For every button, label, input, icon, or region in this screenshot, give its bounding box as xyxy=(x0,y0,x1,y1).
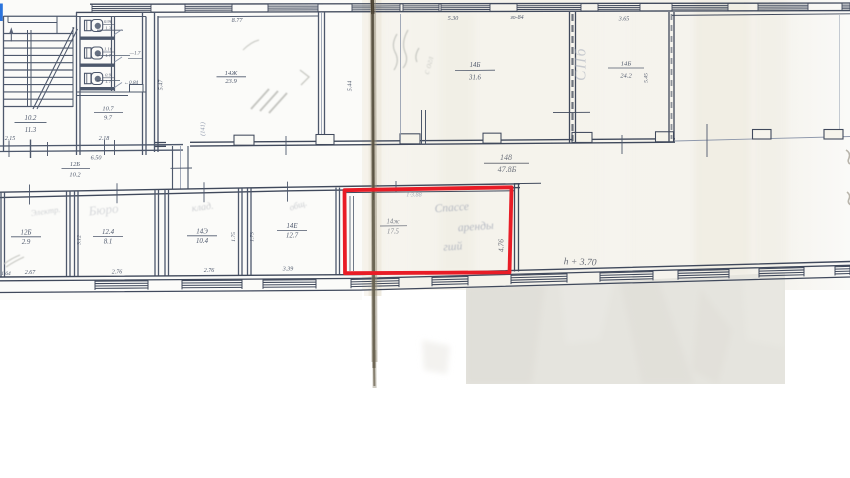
svg-text:1.75: 1.75 xyxy=(231,232,237,242)
svg-text:2.18: 2.18 xyxy=(99,136,110,142)
svg-text:1.3: 1.3 xyxy=(105,26,111,31)
svg-text:14Ж: 14Ж xyxy=(225,70,239,77)
svg-text:4.76: 4.76 xyxy=(497,239,506,252)
svg-text:6.50: 6.50 xyxy=(91,154,103,161)
svg-text:5.44: 5.44 xyxy=(347,81,354,92)
svg-text:14Е: 14Е xyxy=(286,223,298,230)
svg-text:47.8Б: 47.8Б xyxy=(498,165,517,174)
svg-text:3.65: 3.65 xyxy=(618,17,630,23)
svg-text:12Б: 12Б xyxy=(70,161,80,168)
svg-text:14Б: 14Б xyxy=(621,60,632,67)
svg-text:12.4: 12.4 xyxy=(102,229,115,236)
svg-text:СПб: СПб xyxy=(573,47,590,81)
svg-text:10.2: 10.2 xyxy=(25,115,37,122)
svg-text:аренды: аренды xyxy=(457,220,494,234)
svg-text:5.30: 5.30 xyxy=(448,16,459,22)
svg-text:1.7: 1.7 xyxy=(105,53,111,58)
svg-text:2.76: 2.76 xyxy=(112,269,123,275)
svg-text:10.2: 10.2 xyxy=(69,171,81,178)
svg-text:зо-84: зо-84 xyxy=(509,14,523,21)
svg-text:1.64: 1.64 xyxy=(1,271,11,277)
svg-text:1.16: 1.16 xyxy=(104,47,113,52)
svg-text:17.5: 17.5 xyxy=(387,228,399,235)
svg-text:8.77: 8.77 xyxy=(232,17,244,24)
svg-text:1·3.88: 1·3.88 xyxy=(406,192,422,199)
svg-text:2.9: 2.9 xyxy=(22,239,31,246)
svg-text:0.96: 0.96 xyxy=(104,19,113,24)
svg-text:12Б: 12Б xyxy=(21,230,32,237)
svg-text:5.47: 5.47 xyxy=(158,79,165,91)
svg-text:24.2: 24.2 xyxy=(620,72,632,79)
svg-text:3.39: 3.39 xyxy=(282,266,294,272)
svg-text:3.12: 3.12 xyxy=(77,235,83,246)
svg-text:←0.84: ←0.84 xyxy=(124,79,139,86)
svg-text:9.7: 9.7 xyxy=(104,115,113,122)
svg-text:14Э: 14Э xyxy=(196,229,208,236)
svg-text:2.67: 2.67 xyxy=(25,270,37,276)
svg-text:Спассе: Спассе xyxy=(434,201,469,215)
svg-text:1.7: 1.7 xyxy=(105,79,111,84)
svg-text:10.7: 10.7 xyxy=(102,106,114,113)
svg-text:8.1: 8.1 xyxy=(104,238,113,245)
svg-text:11.3: 11.3 xyxy=(25,127,37,134)
svg-text:12.7: 12.7 xyxy=(286,232,299,239)
svg-text:—1.7: —1.7 xyxy=(129,51,141,56)
svg-text:23.9: 23.9 xyxy=(225,78,237,85)
svg-text:h + 3.70: h + 3.70 xyxy=(563,256,596,268)
svg-text:14Б: 14Б xyxy=(470,62,481,69)
svg-text:1.73: 1.73 xyxy=(250,232,256,242)
svg-text:0.9: 0.9 xyxy=(105,72,111,77)
svg-text:31.6: 31.6 xyxy=(468,75,481,82)
svg-text:5.45: 5.45 xyxy=(644,73,650,83)
svg-text:(141): (141) xyxy=(200,122,207,136)
svg-text:2.15: 2.15 xyxy=(5,136,16,142)
svg-text:10.4: 10.4 xyxy=(196,238,209,245)
svg-text:14ж: 14ж xyxy=(386,218,400,225)
svg-text:2.76: 2.76 xyxy=(204,268,215,274)
svg-text:гшй: гшй xyxy=(443,239,463,253)
svg-text:148: 148 xyxy=(500,153,512,162)
